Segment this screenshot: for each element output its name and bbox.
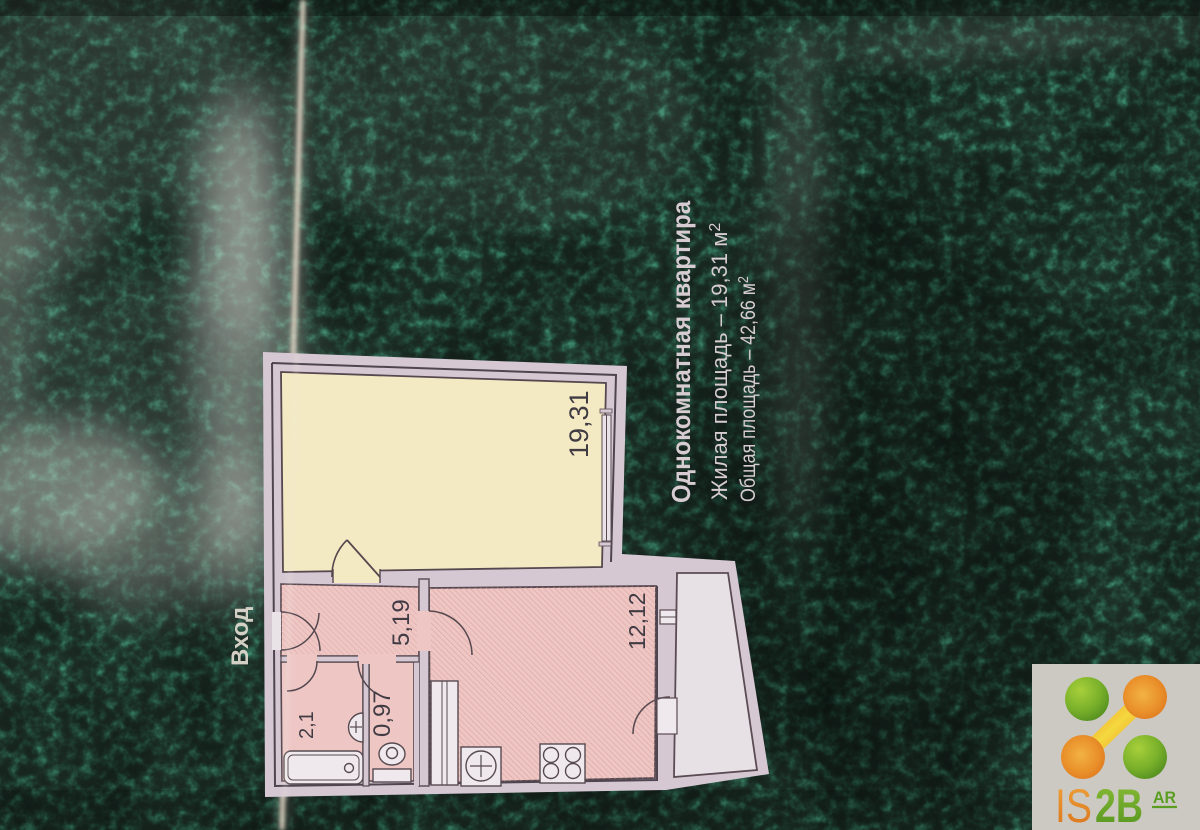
svg-text:2,1: 2,1 xyxy=(296,711,318,739)
svg-text:19,31: 19,31 xyxy=(564,390,594,458)
svg-text:Однокомнатная квартира: Однокомнатная квартира xyxy=(666,201,696,503)
svg-text:AR: AR xyxy=(1153,788,1176,807)
svg-text:5,19: 5,19 xyxy=(388,599,415,646)
svg-text:12,12: 12,12 xyxy=(624,592,650,650)
svg-text:Вход: Вход xyxy=(227,607,254,666)
svg-text:IS: IS xyxy=(1055,779,1092,830)
svg-text:Жилая площадь – 19,31 м2: Жилая площадь – 19,31 м2 xyxy=(707,223,732,500)
svg-text:2B: 2B xyxy=(1095,779,1143,830)
svg-text:0,97: 0,97 xyxy=(369,690,396,737)
svg-text:Общая площадь – 42,66 м2: Общая площадь – 42,66 м2 xyxy=(735,276,760,502)
